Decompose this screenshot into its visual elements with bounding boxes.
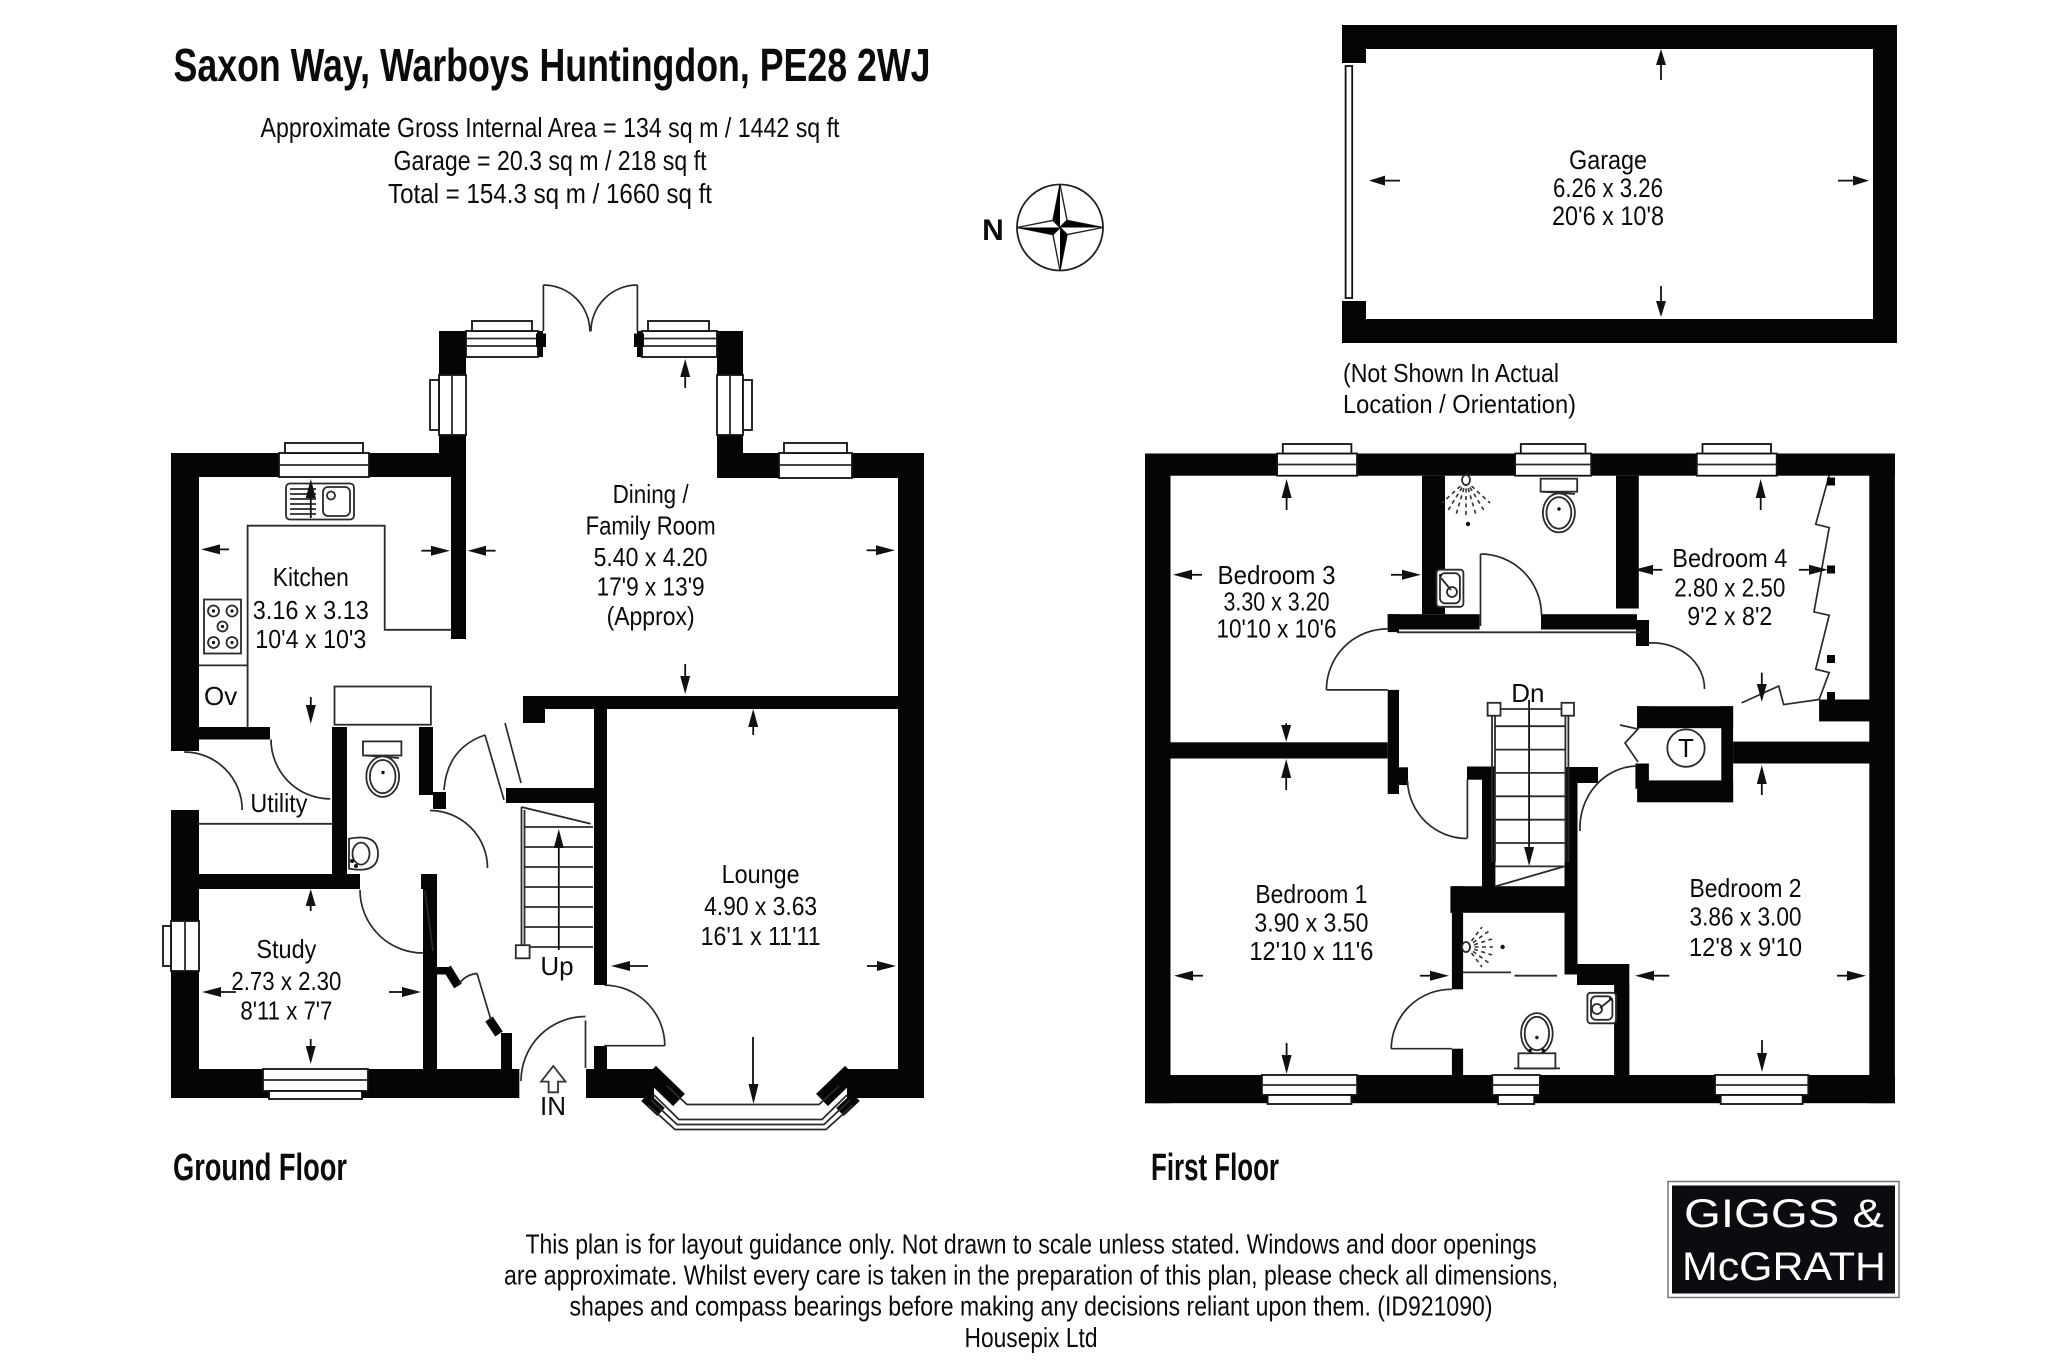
svg-text:17'9 x 13'9: 17'9 x 13'9 [597, 572, 705, 602]
svg-text:Family Room: Family Room [586, 511, 716, 541]
svg-text:Bedroom 1: Bedroom 1 [1255, 879, 1367, 909]
svg-text:2.73 x 2.30: 2.73 x 2.30 [231, 966, 341, 996]
svg-text:6.26 x 3.26: 6.26 x 3.26 [1553, 173, 1663, 203]
svg-text:Ground Floor: Ground Floor [173, 1147, 347, 1189]
svg-text:McGRATH: McGRATH [1682, 1245, 1886, 1289]
svg-text:3.16 x 3.13: 3.16 x 3.13 [253, 595, 369, 625]
svg-text:2.80 x 2.50: 2.80 x 2.50 [1674, 572, 1785, 602]
svg-text:Study: Study [256, 934, 316, 964]
svg-text:10'4 x 10'3: 10'4 x 10'3 [255, 624, 366, 654]
svg-text:GIGGS &: GIGGS & [1684, 1192, 1884, 1236]
svg-text:Garage: Garage [1569, 145, 1647, 175]
svg-text:This plan is for layout guidan: This plan is for layout guidance only. N… [526, 1229, 1537, 1260]
svg-text:3.30 x 3.20: 3.30 x 3.20 [1224, 587, 1330, 617]
svg-text:N: N [982, 214, 1004, 247]
svg-text:Ov: Ov [204, 681, 237, 711]
svg-text:Location / Orientation): Location / Orientation) [1343, 389, 1576, 419]
svg-text:Up: Up [540, 951, 573, 981]
svg-text:12'10 x 11'6: 12'10 x 11'6 [1249, 936, 1373, 966]
svg-text:3.86 x 3.00: 3.86 x 3.00 [1690, 902, 1802, 932]
svg-text:shapes and compass bearings be: shapes and compass bearings before makin… [570, 1291, 1493, 1322]
svg-text:4.90 x 3.63: 4.90 x 3.63 [704, 891, 817, 921]
svg-text:16'1 x 11'11: 16'1 x 11'11 [701, 921, 821, 951]
svg-text:(Approx): (Approx) [607, 601, 695, 631]
svg-text:Bedroom 4: Bedroom 4 [1672, 543, 1787, 573]
svg-text:Bedroom 2: Bedroom 2 [1690, 873, 1802, 903]
svg-text:Lounge: Lounge [722, 859, 800, 889]
svg-text:(Not Shown In Actual: (Not Shown In Actual [1343, 358, 1559, 388]
svg-text:Dining /: Dining / [613, 479, 690, 509]
svg-text:Total = 154.3 sq m / 1660 sq f: Total = 154.3 sq m / 1660 sq ft [388, 178, 712, 209]
svg-text:Utility: Utility [250, 788, 307, 818]
svg-text:Garage = 20.3 sq m / 218 sq ft: Garage = 20.3 sq m / 218 sq ft [394, 145, 707, 176]
svg-text:IN: IN [540, 1091, 566, 1121]
svg-text:10'10 x 10'6: 10'10 x 10'6 [1217, 614, 1337, 644]
svg-text:are approximate. Whilst every: are approximate. Whilst every care is ta… [504, 1260, 1558, 1291]
svg-text:Kitchen: Kitchen [273, 562, 349, 592]
svg-text:Approximate Gross Internal Are: Approximate Gross Internal Area = 134 sq… [261, 112, 840, 143]
svg-text:T: T [1678, 733, 1694, 763]
svg-text:5.40 x 4.20: 5.40 x 4.20 [594, 542, 708, 572]
svg-text:Housepix Ltd: Housepix Ltd [965, 1322, 1098, 1353]
svg-text:8'11 x 7'7: 8'11 x 7'7 [240, 996, 332, 1026]
svg-text:20'6 x 10'8: 20'6 x 10'8 [1552, 201, 1664, 231]
svg-text:Saxon Way, Warboys Huntingdon,: Saxon Way, Warboys Huntingdon, PE28 2WJ [174, 39, 931, 91]
svg-text:9'2 x 8'2: 9'2 x 8'2 [1687, 601, 1772, 631]
svg-text:3.90 x 3.50: 3.90 x 3.50 [1254, 907, 1368, 937]
svg-text:Bedroom 3: Bedroom 3 [1218, 560, 1336, 590]
svg-text:First Floor: First Floor [1151, 1147, 1279, 1189]
svg-text:12'8 x 9'10: 12'8 x 9'10 [1689, 932, 1802, 962]
svg-text:Dn: Dn [1511, 678, 1544, 708]
